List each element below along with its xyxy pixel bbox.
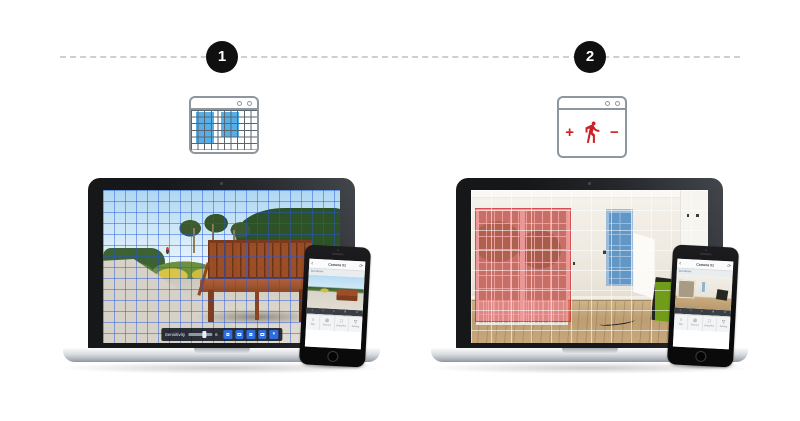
step-1-badge: 1 — [206, 41, 238, 73]
mini-window — [700, 281, 706, 293]
front-camera-dot — [337, 249, 339, 251]
zone-tool-button[interactable] — [247, 330, 256, 339]
refresh-icon[interactable]: ⟳ — [359, 261, 363, 271]
button-glyph — [249, 333, 253, 337]
button-label: Talk — [678, 323, 682, 326]
subbar-label[interactable]: Set Motion — [309, 270, 324, 274]
slider-handle[interactable] — [203, 331, 207, 338]
snapshot-button[interactable]: □ Snapshot — [334, 316, 349, 332]
window-dot-icon — [247, 101, 252, 106]
setting-button[interactable]: ▽ Setting — [348, 316, 362, 332]
button-label: Setting — [352, 325, 360, 328]
page: 1 2 + − — [0, 0, 800, 421]
walking-person-icon — [579, 119, 605, 145]
button-label: Record — [691, 324, 699, 327]
laptop-base-notch — [194, 348, 250, 354]
settings-icon: ▽ — [354, 320, 358, 325]
sensitivity-toolbar: Sensitivity 6 ▾ — [161, 328, 282, 341]
phone-step-2: ‹ Camera 01 ⟳ Set Motion ‹ › ▪ ≡ × — [667, 244, 739, 367]
mini-bench — [336, 289, 358, 301]
button-glyph — [226, 333, 230, 337]
prev-icon[interactable]: ‹ — [680, 309, 681, 312]
mic-icon: ○ — [679, 318, 682, 323]
talk-button[interactable]: ○ Talk — [674, 314, 689, 330]
phone-screen: ‹ Camera 01 ⟳ Set Motion ‹ › ▪ ≡ × — [673, 259, 734, 350]
button-label: Setting — [720, 325, 728, 328]
icon-window-titlebar — [191, 98, 257, 110]
mic-icon: ○ — [311, 318, 314, 323]
sensitivity-slider[interactable] — [188, 333, 212, 336]
prev-icon[interactable]: ‹ — [312, 309, 313, 312]
timeline-dashed-line — [60, 56, 740, 58]
icon-window-titlebar — [559, 98, 625, 110]
zone-tool-button[interactable] — [235, 330, 244, 339]
camera-icon: □ — [708, 319, 711, 324]
camera-icon: □ — [340, 319, 343, 324]
grid-zones-window-icon — [189, 96, 259, 154]
record-dot-icon[interactable]: ▪ — [333, 310, 334, 313]
zone-tool-button[interactable] — [258, 330, 267, 339]
icon-grid-content — [191, 110, 257, 150]
window-dot-icon — [605, 101, 610, 106]
button-label: Snapshot — [704, 325, 714, 328]
menu-icon[interactable]: ≡ — [712, 310, 714, 313]
subbar-label[interactable]: Set Motion — [677, 270, 692, 274]
camera-feed-thumbnail — [675, 274, 733, 310]
sensitivity-value: 6 — [215, 332, 218, 337]
earpiece-speaker — [332, 253, 344, 256]
snapshot-button[interactable]: □ Snapshot — [702, 316, 717, 332]
button-label: Snapshot — [336, 325, 346, 328]
webcam-dot — [588, 182, 591, 185]
phone-step-1: ‹ Camera 01 ⟳ Set Motion ‹ › ▪ ≡ × — [299, 244, 371, 367]
dropdown-button[interactable]: ▾ — [270, 330, 279, 339]
button-glyph — [261, 333, 265, 337]
next-icon[interactable]: › — [322, 309, 323, 312]
home-button[interactable] — [695, 351, 707, 363]
window-dot-icon — [237, 101, 242, 106]
record-button[interactable]: ◎ Record — [320, 315, 335, 331]
icon-person-content: + − — [559, 110, 625, 154]
grid-lines — [191, 110, 257, 150]
person-plus-minus-window-icon: + − — [557, 96, 627, 158]
laptop-base-notch — [562, 348, 618, 354]
record-dot-icon[interactable]: ▪ — [701, 310, 702, 313]
plus-sign: + — [565, 125, 574, 140]
settings-icon: ▽ — [722, 320, 726, 325]
window-dot-icon — [615, 101, 620, 106]
zone-tool-button[interactable] — [224, 330, 233, 339]
blank-area — [305, 329, 362, 349]
close-icon[interactable]: × — [356, 311, 358, 314]
button-label: Talk — [310, 323, 314, 326]
close-icon[interactable]: × — [724, 311, 726, 314]
button-label: Record — [323, 324, 331, 327]
setting-button[interactable]: ▽ Setting — [716, 316, 730, 332]
button-glyph — [238, 333, 242, 337]
sensitivity-label: Sensitivity — [165, 332, 185, 337]
webcam-dot — [220, 182, 223, 185]
record-button[interactable]: ◎ Record — [688, 315, 703, 331]
mini-tv — [716, 290, 729, 302]
mini-doors — [678, 279, 696, 298]
earpiece-speaker — [700, 253, 712, 256]
refresh-icon[interactable]: ⟳ — [727, 261, 731, 271]
menu-icon[interactable]: ≡ — [344, 310, 346, 313]
next-icon[interactable]: › — [690, 309, 691, 312]
minus-sign: − — [610, 125, 619, 140]
camera-feed-thumbnail — [307, 274, 365, 310]
phone-screen: ‹ Camera 01 ⟳ Set Motion ‹ › ▪ ≡ × — [305, 259, 366, 350]
front-camera-dot — [705, 249, 707, 251]
mini-flowers — [318, 288, 335, 293]
blank-area — [673, 329, 730, 349]
talk-button[interactable]: ○ Talk — [306, 314, 321, 330]
step-2-badge: 2 — [574, 41, 606, 73]
home-button[interactable] — [327, 351, 339, 363]
